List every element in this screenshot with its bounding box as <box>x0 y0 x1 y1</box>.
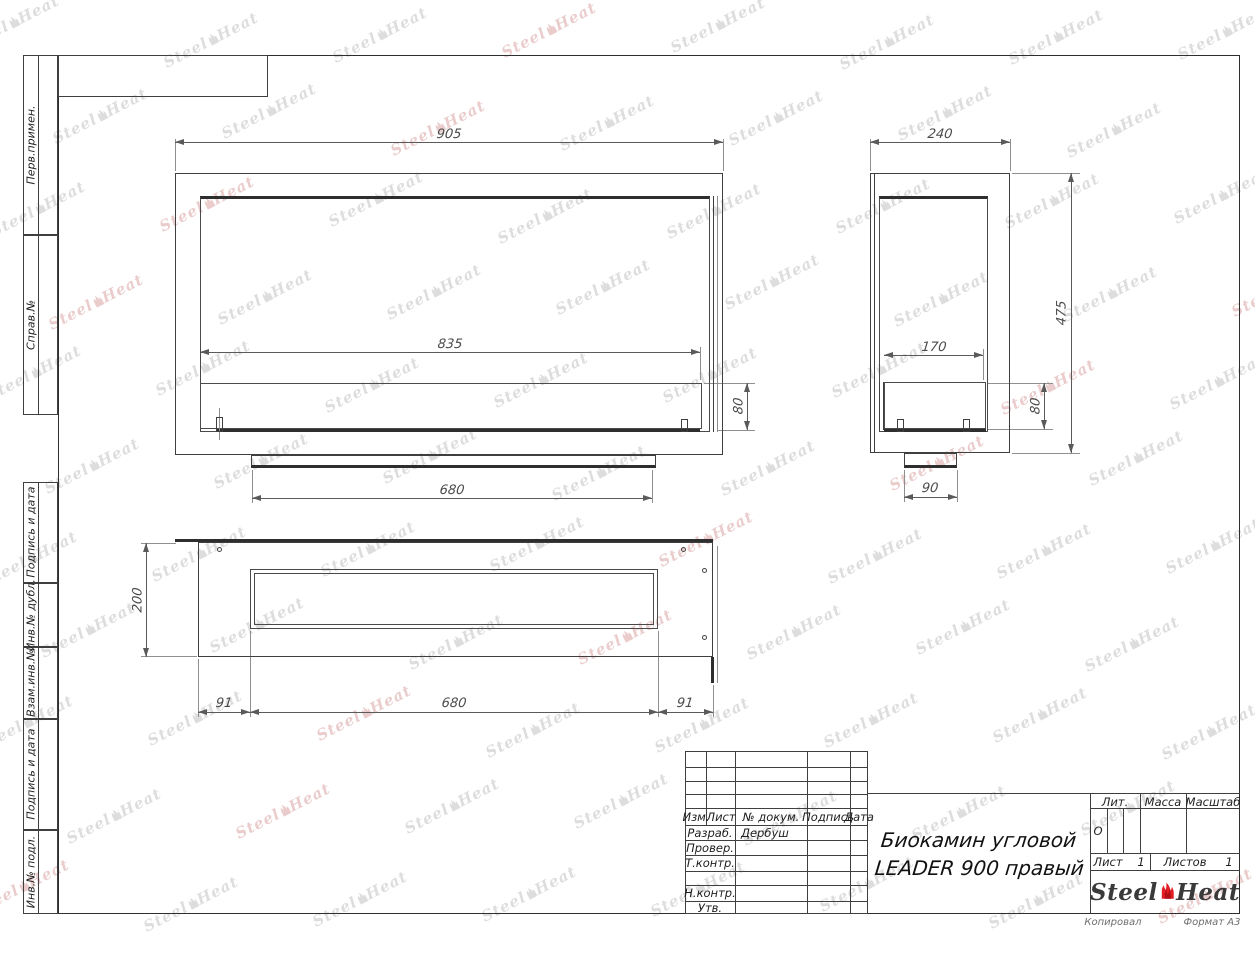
line <box>850 751 851 914</box>
watermark: SteelHeat <box>0 0 62 55</box>
line <box>38 55 39 235</box>
line <box>1123 808 1124 853</box>
corner-glass-edge <box>713 196 714 432</box>
glass-edge <box>883 382 884 430</box>
line <box>1150 853 1151 870</box>
mount-hole <box>681 547 686 552</box>
format-note: Формат А3 <box>1184 917 1241 928</box>
right-flange-edge <box>717 546 718 683</box>
burner-pin <box>681 419 688 432</box>
watermark: SteelHeat <box>668 0 769 57</box>
row-nkontr: Н.контр. <box>684 886 735 900</box>
side-foot <box>904 453 957 468</box>
dim-burner-width: 835 <box>437 337 463 352</box>
burner-floor-line <box>217 429 700 432</box>
front-base-strip <box>251 455 656 468</box>
line <box>685 781 868 782</box>
logo-heat-text: Heat <box>1176 879 1240 906</box>
right-flange-edge <box>711 657 714 683</box>
mount-hole <box>217 547 222 552</box>
col-header-doc: № докум. <box>743 810 800 824</box>
steelheat-logo: Steel Heat <box>1090 870 1240 914</box>
line <box>685 808 868 809</box>
row-razrab: Разраб. <box>687 826 732 840</box>
glass-edge <box>879 382 880 430</box>
margin-label: Взам.инв.№ <box>25 649 38 717</box>
line <box>1090 853 1240 854</box>
margin-label: Справ.№ <box>25 300 38 350</box>
dim-offset-right: 91 <box>676 696 694 711</box>
sheets-label: Листов <box>1164 855 1207 869</box>
top-left-stamp-box <box>58 55 268 97</box>
line <box>38 235 39 415</box>
dim-depth: 200 <box>131 587 146 613</box>
line <box>685 767 868 768</box>
dim-burner-depth: 170 <box>921 340 947 355</box>
document-title-line1: Биокамин угловой <box>880 828 1078 852</box>
scale-label: Масштаб <box>1186 795 1241 809</box>
dim-overall-height: 475 <box>1055 300 1070 326</box>
sheet-label: Лист <box>1093 855 1122 869</box>
margin-label: Перв.примен. <box>25 105 38 184</box>
col-header-list: Лист <box>706 810 735 824</box>
lit-value: О <box>1093 824 1102 838</box>
lit-label: Лит. <box>1102 795 1128 809</box>
line <box>685 794 868 795</box>
line <box>38 830 39 914</box>
dim-foot-width: 90 <box>921 481 939 496</box>
flame-icon <box>1160 876 1174 906</box>
margin-label: Инв.№ подл. <box>25 836 38 908</box>
line <box>1140 793 1141 853</box>
watermark: SteelHeat <box>499 0 600 62</box>
margin-label: Инв.№ дубл. <box>25 579 38 651</box>
burner-pin <box>963 419 970 432</box>
mount-hole <box>702 568 707 573</box>
document-title-line2: LEADER 900 правый <box>873 856 1084 880</box>
dim-burner-height: 80 <box>732 397 747 415</box>
sheets-value: 1 <box>1225 855 1232 869</box>
line <box>1107 808 1108 853</box>
mount-hole <box>702 635 707 640</box>
mass-label: Масса <box>1145 795 1182 809</box>
line <box>38 647 39 719</box>
dim-overall-width: 905 <box>436 127 462 142</box>
logo-steel-text: Steel <box>1090 879 1158 906</box>
line <box>38 482 39 583</box>
document-title: Биокамин угловой LEADER 900 правый <box>868 793 1090 914</box>
dim-overall-depth: 240 <box>927 127 953 142</box>
line <box>38 719 39 830</box>
dim-base-width: 680 <box>439 483 465 498</box>
dim-offset-left: 91 <box>215 696 233 711</box>
corner-glass-edge <box>717 196 718 432</box>
front-burner-tray <box>200 383 702 429</box>
sheet-value: 1 <box>1137 855 1144 869</box>
drawing-sheet: SteelHeatSteelHeatSteelHeatSteelHeatStee… <box>0 0 1255 970</box>
dim-opening-width: 680 <box>441 696 467 711</box>
burner-pin <box>897 419 904 432</box>
margin-label: Подпись и дата <box>25 486 38 577</box>
developer-name: Дербуш <box>741 826 789 840</box>
line <box>38 583 39 647</box>
row-prover: Провер. <box>686 841 734 855</box>
row-utv: Утв. <box>698 901 722 915</box>
copied-note: Копировал <box>1084 917 1141 928</box>
line <box>685 871 868 872</box>
burner-pin <box>216 417 223 432</box>
dim-burner-height: 80 <box>1029 397 1044 415</box>
side-panel-edge <box>874 173 875 453</box>
margin-label: Подпись и дата <box>25 728 38 819</box>
line <box>807 751 808 914</box>
row-tkontr: Т.контр. <box>685 856 735 870</box>
top-opening-inner <box>254 573 654 625</box>
